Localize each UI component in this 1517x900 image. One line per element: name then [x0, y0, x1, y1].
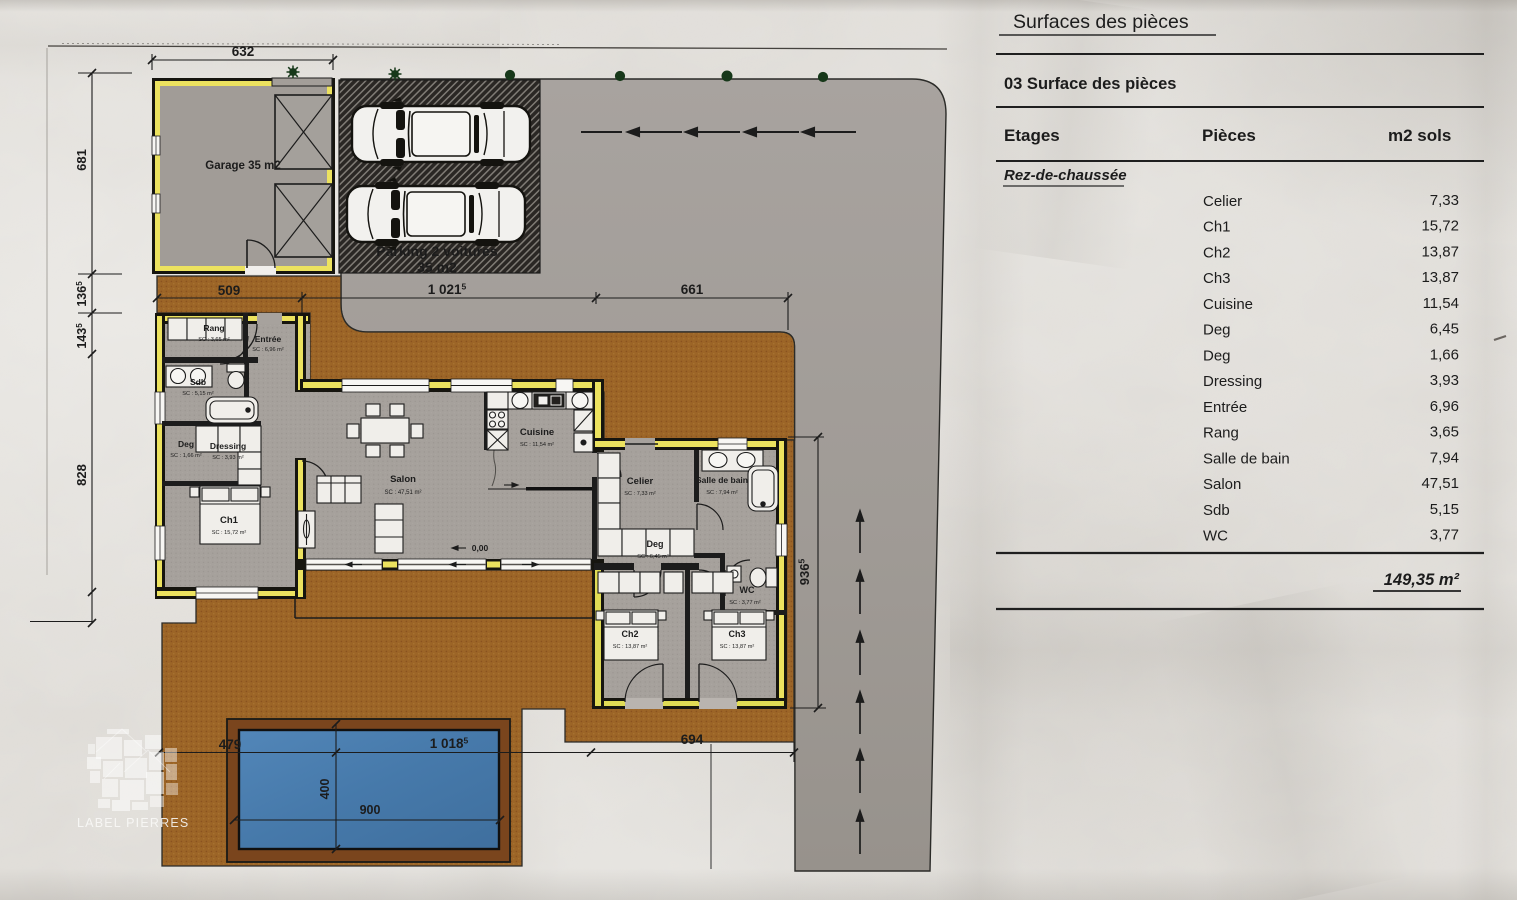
- svg-text:400: 400: [318, 779, 332, 800]
- svg-text:1 0185: 1 0185: [430, 736, 469, 752]
- svg-text:SC : 15,72 m²: SC : 15,72 m²: [212, 530, 247, 536]
- svg-text:Dressing: Dressing: [1203, 373, 1262, 390]
- svg-text:03 Surface des pièces: 03 Surface des pièces: [1004, 75, 1176, 93]
- svg-text:900: 900: [360, 803, 381, 817]
- svg-text:3,77: 3,77: [1430, 527, 1459, 544]
- svg-text:Ch2: Ch2: [621, 629, 638, 639]
- svg-text:Rez-de-chaussée: Rez-de-chaussée: [1004, 167, 1127, 184]
- svg-text:Surfaces des pièces: Surfaces des pièces: [1013, 11, 1189, 33]
- svg-text:Ch1: Ch1: [220, 515, 239, 526]
- svg-text:m2 sols: m2 sols: [1388, 126, 1451, 145]
- svg-text:Sdb: Sdb: [190, 377, 206, 387]
- svg-text:WC: WC: [740, 585, 755, 595]
- svg-text:SC : 3,93 m²: SC : 3,93 m²: [212, 455, 244, 461]
- svg-text:694: 694: [681, 732, 704, 747]
- svg-text:SC : 11,54 m²: SC : 11,54 m²: [520, 442, 554, 448]
- svg-text:15,72: 15,72: [1421, 218, 1459, 235]
- svg-text:SC : 7,94 m²: SC : 7,94 m²: [706, 490, 738, 496]
- svg-text:3,65: 3,65: [1430, 424, 1459, 441]
- svg-text:SC : 6,45 m²: SC : 6,45 m²: [637, 554, 669, 560]
- svg-text:1 0215: 1 0215: [428, 282, 467, 298]
- svg-text:Entrée: Entrée: [1203, 399, 1247, 416]
- svg-text:149,35 m²: 149,35 m²: [1384, 571, 1460, 589]
- svg-text:Salon: Salon: [390, 474, 416, 485]
- svg-text:Pièces: Pièces: [1202, 126, 1256, 145]
- svg-text:5,15: 5,15: [1430, 501, 1459, 518]
- svg-text:Deg: Deg: [1203, 348, 1231, 365]
- svg-text:Etages: Etages: [1004, 126, 1060, 145]
- svg-text:SC : 3,65 m²: SC : 3,65 m²: [198, 337, 230, 343]
- svg-text:SC : 13,87 m²: SC : 13,87 m²: [613, 644, 648, 650]
- svg-text:11,54: 11,54: [1423, 295, 1459, 312]
- svg-text:WC: WC: [1203, 528, 1228, 545]
- svg-text:13,87: 13,87: [1421, 269, 1459, 286]
- svg-text:SC : 3,77 m²: SC : 3,77 m²: [729, 600, 761, 606]
- svg-text:13,87: 13,87: [1421, 244, 1459, 261]
- svg-text:Celier: Celier: [1203, 193, 1242, 210]
- svg-text:661: 661: [681, 282, 704, 297]
- svg-text:Cuisine: Cuisine: [1203, 296, 1253, 313]
- svg-text:SC : 47,51 m²: SC : 47,51 m²: [384, 490, 421, 496]
- svg-text:LABEL PIERRES: LABEL PIERRES: [77, 816, 189, 830]
- svg-text:Cuisine: Cuisine: [520, 427, 554, 438]
- svg-text:7,94: 7,94: [1430, 450, 1459, 467]
- svg-text:Ch1: Ch1: [1203, 219, 1231, 236]
- svg-text:Deg: Deg: [1203, 322, 1231, 339]
- svg-text:Dressing: Dressing: [210, 441, 246, 451]
- svg-text:632: 632: [232, 44, 255, 59]
- svg-text:SC : 6,96 m²: SC : 6,96 m²: [252, 347, 284, 353]
- svg-text:Salon: Salon: [1203, 476, 1241, 493]
- svg-text:479: 479: [219, 737, 242, 752]
- svg-text:Ch2: Ch2: [1203, 245, 1231, 262]
- svg-text:Celier: Celier: [627, 476, 654, 487]
- svg-text:0,00: 0,00: [472, 543, 489, 553]
- svg-text:Ch3: Ch3: [728, 629, 745, 639]
- svg-text:Ch3: Ch3: [1203, 270, 1231, 287]
- svg-text:Rang: Rang: [203, 323, 224, 333]
- svg-text:1,66: 1,66: [1430, 347, 1459, 364]
- svg-text:Deg: Deg: [178, 439, 194, 449]
- svg-text:3,93: 3,93: [1430, 372, 1459, 389]
- svg-text:828: 828: [74, 464, 89, 486]
- svg-text:SC : 1,66 m²: SC : 1,66 m²: [170, 453, 202, 459]
- svg-text:SC : 5,15 m²: SC : 5,15 m²: [182, 391, 214, 397]
- svg-text:35 m2: 35 m2: [417, 259, 457, 275]
- svg-text:Salle de bain: Salle de bain: [696, 475, 748, 485]
- svg-text:47,51: 47,51: [1421, 475, 1459, 492]
- svg-text:Rang: Rang: [1203, 425, 1239, 442]
- svg-text:Deg: Deg: [646, 539, 663, 549]
- svg-text:Entrée: Entrée: [255, 334, 282, 344]
- svg-text:6,96: 6,96: [1430, 398, 1459, 415]
- svg-text:Parking 2 voitures: Parking 2 voitures: [376, 243, 498, 259]
- svg-text:Salle de bain: Salle de bain: [1203, 451, 1290, 468]
- svg-text:Sdb: Sdb: [1203, 502, 1230, 519]
- svg-text:6,45: 6,45: [1430, 321, 1459, 338]
- svg-text:SC : 7,33 m²: SC : 7,33 m²: [624, 491, 656, 497]
- svg-text:681: 681: [74, 149, 89, 171]
- svg-text:SC : 13,87 m²: SC : 13,87 m²: [720, 644, 755, 650]
- svg-text:509: 509: [218, 283, 241, 298]
- svg-text:Garage 35 m2: Garage 35 m2: [205, 160, 280, 172]
- svg-text:7,33: 7,33: [1430, 192, 1459, 209]
